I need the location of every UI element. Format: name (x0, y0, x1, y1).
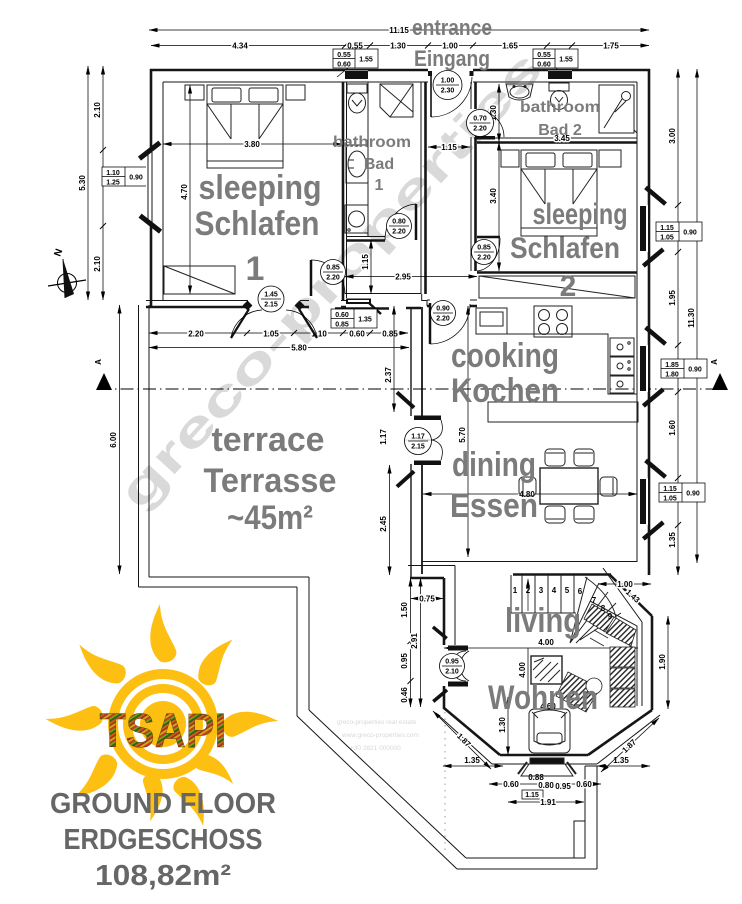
svg-text:1.00: 1.00 (441, 78, 455, 85)
svg-text:3: 3 (539, 586, 544, 595)
svg-text:2.37: 2.37 (384, 367, 393, 383)
svg-text:0.55: 0.55 (337, 52, 351, 59)
svg-text:1.17: 1.17 (379, 429, 388, 445)
svg-text:living: living (505, 602, 581, 640)
svg-text:4: 4 (552, 586, 557, 595)
svg-text:1: 1 (513, 586, 518, 595)
svg-text:1.15: 1.15 (361, 254, 370, 270)
svg-text:0.90: 0.90 (686, 491, 700, 498)
svg-text:2.20: 2.20 (326, 275, 340, 282)
svg-text:1.17: 1.17 (411, 434, 425, 441)
svg-text:3.00: 3.00 (668, 128, 677, 144)
svg-text:Terrasse: Terrasse (204, 462, 337, 500)
svg-text:Wohnen: Wohnen (488, 679, 598, 717)
svg-text:2: 2 (526, 586, 531, 595)
svg-text:2.20: 2.20 (477, 255, 491, 262)
svg-text:1.30: 1.30 (390, 42, 406, 51)
svg-text:entrance: entrance (412, 15, 492, 40)
svg-text:1.65: 1.65 (502, 42, 518, 51)
svg-text:1.15: 1.15 (525, 792, 539, 799)
svg-text:1.80: 1.80 (665, 372, 679, 379)
svg-text:1.05: 1.05 (263, 330, 279, 339)
svg-text:9: 9 (608, 612, 613, 621)
svg-text:5.30: 5.30 (78, 175, 87, 191)
svg-text:1.55: 1.55 (359, 57, 373, 64)
svg-text:1.91: 1.91 (540, 798, 556, 807)
svg-text:+30 2821 000000: +30 2821 000000 (350, 745, 401, 752)
svg-text:1.85: 1.85 (665, 362, 679, 369)
svg-text:0.80: 0.80 (392, 219, 406, 226)
svg-text:2: 2 (560, 270, 577, 303)
svg-text:1.35: 1.35 (358, 317, 372, 324)
svg-text:bathroom: bathroom (333, 134, 411, 151)
svg-text:TSAPI: TSAPI (100, 705, 227, 758)
svg-text:0.75: 0.75 (419, 595, 435, 604)
svg-text:0.90: 0.90 (129, 175, 143, 182)
svg-text:6: 6 (578, 587, 583, 596)
svg-text:0.60: 0.60 (503, 780, 519, 789)
svg-text:2.20: 2.20 (473, 126, 487, 133)
svg-text:2.10: 2.10 (93, 102, 102, 118)
svg-text:5.80: 5.80 (291, 344, 307, 353)
svg-text:0.60: 0.60 (337, 62, 351, 69)
svg-text:1.35: 1.35 (668, 532, 677, 548)
svg-text:1.15: 1.15 (441, 143, 457, 152)
svg-text:A: A (94, 359, 103, 365)
svg-text:1.05: 1.05 (663, 496, 677, 503)
svg-text:~45m²: ~45m² (227, 499, 313, 537)
svg-text:2.15: 2.15 (411, 444, 425, 451)
svg-text:0.70: 0.70 (473, 116, 487, 123)
svg-text:2.20: 2.20 (392, 229, 406, 236)
svg-text:1: 1 (246, 250, 265, 288)
svg-text:A: A (710, 359, 719, 365)
svg-text:1.95: 1.95 (668, 290, 677, 306)
svg-text:5.70: 5.70 (458, 427, 467, 443)
svg-text:Bad 2: Bad 2 (538, 122, 582, 139)
svg-text:1.30: 1.30 (498, 717, 507, 733)
svg-text:1.15: 1.15 (663, 486, 677, 493)
svg-text:sleeping: sleeping (199, 169, 322, 207)
svg-text:0.60: 0.60 (576, 780, 592, 789)
svg-text:2.20: 2.20 (436, 316, 450, 323)
svg-text:0.60: 0.60 (335, 312, 349, 319)
svg-text:Bad: Bad (364, 156, 394, 173)
svg-text:7: 7 (592, 596, 597, 605)
svg-text:3.80: 3.80 (244, 140, 260, 149)
svg-text:1.25: 1.25 (106, 180, 120, 187)
svg-text:1.15: 1.15 (660, 225, 674, 232)
svg-text:0.60: 0.60 (349, 330, 365, 339)
svg-text:1.10: 1.10 (106, 170, 120, 177)
svg-text:11.30: 11.30 (687, 308, 696, 328)
svg-text:0.95: 0.95 (445, 659, 459, 666)
svg-text:0.90: 0.90 (436, 306, 450, 313)
svg-text:2.10: 2.10 (445, 669, 459, 676)
svg-text:8: 8 (601, 604, 606, 613)
svg-text:Schlafen: Schlafen (510, 232, 620, 265)
svg-text:Essen: Essen (450, 487, 538, 525)
svg-text:0.90: 0.90 (688, 367, 702, 374)
svg-text:5: 5 (565, 586, 570, 595)
svg-text:1.90: 1.90 (658, 654, 667, 670)
svg-text:0.55: 0.55 (537, 52, 551, 59)
svg-text:2.95: 2.95 (395, 273, 411, 282)
svg-text:2.91: 2.91 (410, 633, 419, 649)
svg-text:6.00: 6.00 (109, 432, 118, 448)
svg-text:1.75: 1.75 (603, 42, 619, 51)
svg-text:0.85: 0.85 (477, 245, 491, 252)
svg-text:Schlafen: Schlafen (195, 205, 320, 243)
svg-text:0.95: 0.95 (400, 653, 409, 669)
svg-text:terrace: terrace (212, 421, 325, 459)
svg-text:2.15: 2.15 (264, 302, 278, 309)
svg-text:bathroom: bathroom (520, 99, 600, 116)
svg-text:cooking: cooking (451, 337, 559, 375)
svg-text:dining: dining (452, 446, 536, 484)
svg-text:108,82m²: 108,82m² (95, 860, 231, 892)
svg-text:1.60: 1.60 (668, 420, 677, 436)
svg-text:1.55: 1.55 (559, 57, 573, 64)
svg-text:0.85: 0.85 (335, 322, 349, 329)
svg-text:4.34: 4.34 (232, 42, 248, 51)
svg-text:0.95: 0.95 (555, 782, 571, 791)
svg-text:1: 1 (375, 177, 384, 194)
svg-text:greco-properties real estate: greco-properties real estate (337, 719, 417, 726)
svg-text:Eingang: Eingang (414, 46, 490, 71)
svg-text:0.85: 0.85 (382, 330, 398, 339)
svg-text:1.50: 1.50 (400, 602, 409, 618)
svg-text:4.70: 4.70 (180, 184, 189, 200)
svg-text:GROUND FLOOR: GROUND FLOOR (50, 788, 276, 820)
svg-text:sleeping: sleeping (533, 198, 628, 231)
svg-text:0.60: 0.60 (537, 62, 551, 69)
svg-text:0.46: 0.46 (400, 687, 409, 703)
svg-text:0.80: 0.80 (538, 781, 554, 790)
svg-text:ERDGESCHOSS: ERDGESCHOSS (64, 824, 263, 856)
svg-text:11.15: 11.15 (389, 26, 409, 35)
svg-text:4.00: 4.00 (518, 662, 527, 678)
svg-text:1.05: 1.05 (660, 235, 674, 242)
svg-text:0.85: 0.85 (326, 265, 340, 272)
svg-text:Kochen: Kochen (451, 372, 559, 410)
svg-text:2.10: 2.10 (93, 256, 102, 272)
svg-text:1.35: 1.35 (464, 756, 480, 765)
svg-text:3.40: 3.40 (489, 188, 498, 204)
svg-text:www.greco-properties.com: www.greco-properties.com (341, 732, 419, 739)
svg-text:0.90: 0.90 (683, 230, 697, 237)
svg-text:2.45: 2.45 (379, 516, 388, 532)
svg-text:1.45: 1.45 (264, 292, 278, 299)
svg-text:1.35: 1.35 (613, 756, 629, 765)
svg-text:2.20: 2.20 (188, 330, 204, 339)
svg-text:2.30: 2.30 (441, 88, 455, 95)
